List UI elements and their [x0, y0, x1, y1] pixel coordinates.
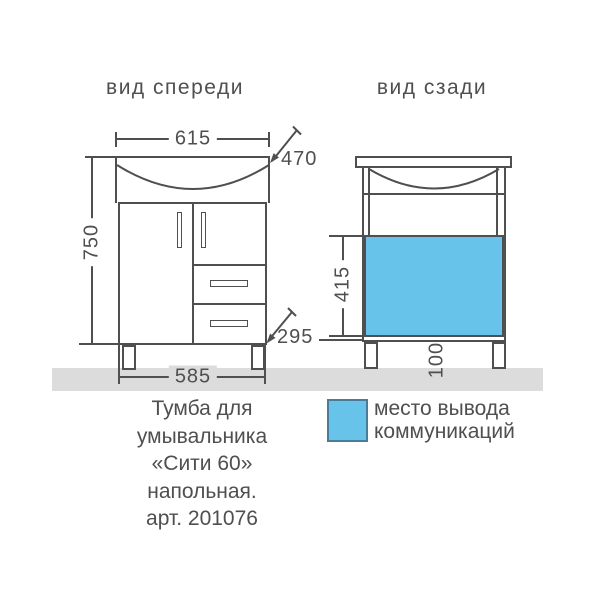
drawer-handle-2 [210, 320, 248, 327]
dim-label-585: 585 [169, 366, 217, 389]
back-rail-line [364, 193, 504, 195]
legend-label-line-2: коммуникаций [374, 420, 515, 443]
legend-color-swatch [327, 399, 368, 442]
front-leg-right [251, 345, 265, 370]
drawer-handle-1 [210, 280, 248, 287]
dim-750-ext-bottom [79, 343, 119, 345]
caption-line-5: арт. 201076 [88, 505, 316, 533]
caption-line-1: Тумба для [88, 395, 316, 423]
leader-arrow-295 [267, 334, 276, 344]
leader-tick-470 [293, 127, 301, 135]
caption-line-2: умывальника [88, 423, 316, 451]
dim-label-615: 615 [169, 128, 217, 151]
back-wall-inner-right [496, 166, 498, 236]
back-leg-right [492, 342, 506, 369]
floor-strip [52, 368, 543, 391]
basin-side-right [268, 156, 270, 203]
leader-arrow-470 [270, 153, 279, 163]
vanity-technical-drawing: вид спереди 615 750 585 470 295 вид сзад… [0, 0, 600, 600]
basin-side-left [115, 156, 117, 203]
legend-label-line-1: место вывода [374, 397, 515, 420]
back-view-title: вид сзади [377, 76, 487, 100]
caption-line-3: «Сити 60» [88, 450, 316, 478]
dim-label-295: 295 [277, 326, 313, 349]
dim-585-ext-left [118, 345, 120, 384]
back-leg-left [364, 342, 378, 369]
countertop-top-line [85, 156, 270, 158]
legend-label: место вывода коммуникаций [374, 397, 515, 443]
left-door-handle [177, 212, 182, 248]
dim-label-100: 100 [426, 342, 449, 378]
dim-label-415: 415 [332, 260, 355, 308]
communications-zone [364, 235, 504, 337]
caption-line-4: напольная. [88, 478, 316, 506]
dim-415-ext-bottom [329, 335, 364, 337]
leader-tick-295 [288, 308, 296, 316]
door-divider [192, 202, 194, 345]
dim-label-750: 750 [81, 218, 104, 266]
right-door-handle [201, 212, 206, 248]
front-view-title: вид спереди [106, 76, 244, 100]
back-bottom-ext [319, 339, 364, 341]
drawer-divider-2 [192, 303, 267, 305]
back-wall-inner-left [368, 166, 370, 236]
dim-585-ext-right [264, 345, 266, 384]
product-caption: Тумба для умывальника «Сити 60» напольна… [88, 395, 316, 533]
dim-415-ext-top [329, 235, 364, 237]
washbasin-curve-front [117, 165, 269, 189]
front-leg-left [122, 345, 136, 370]
drawer-divider-1 [192, 264, 267, 266]
dim-label-470: 470 [281, 148, 317, 171]
